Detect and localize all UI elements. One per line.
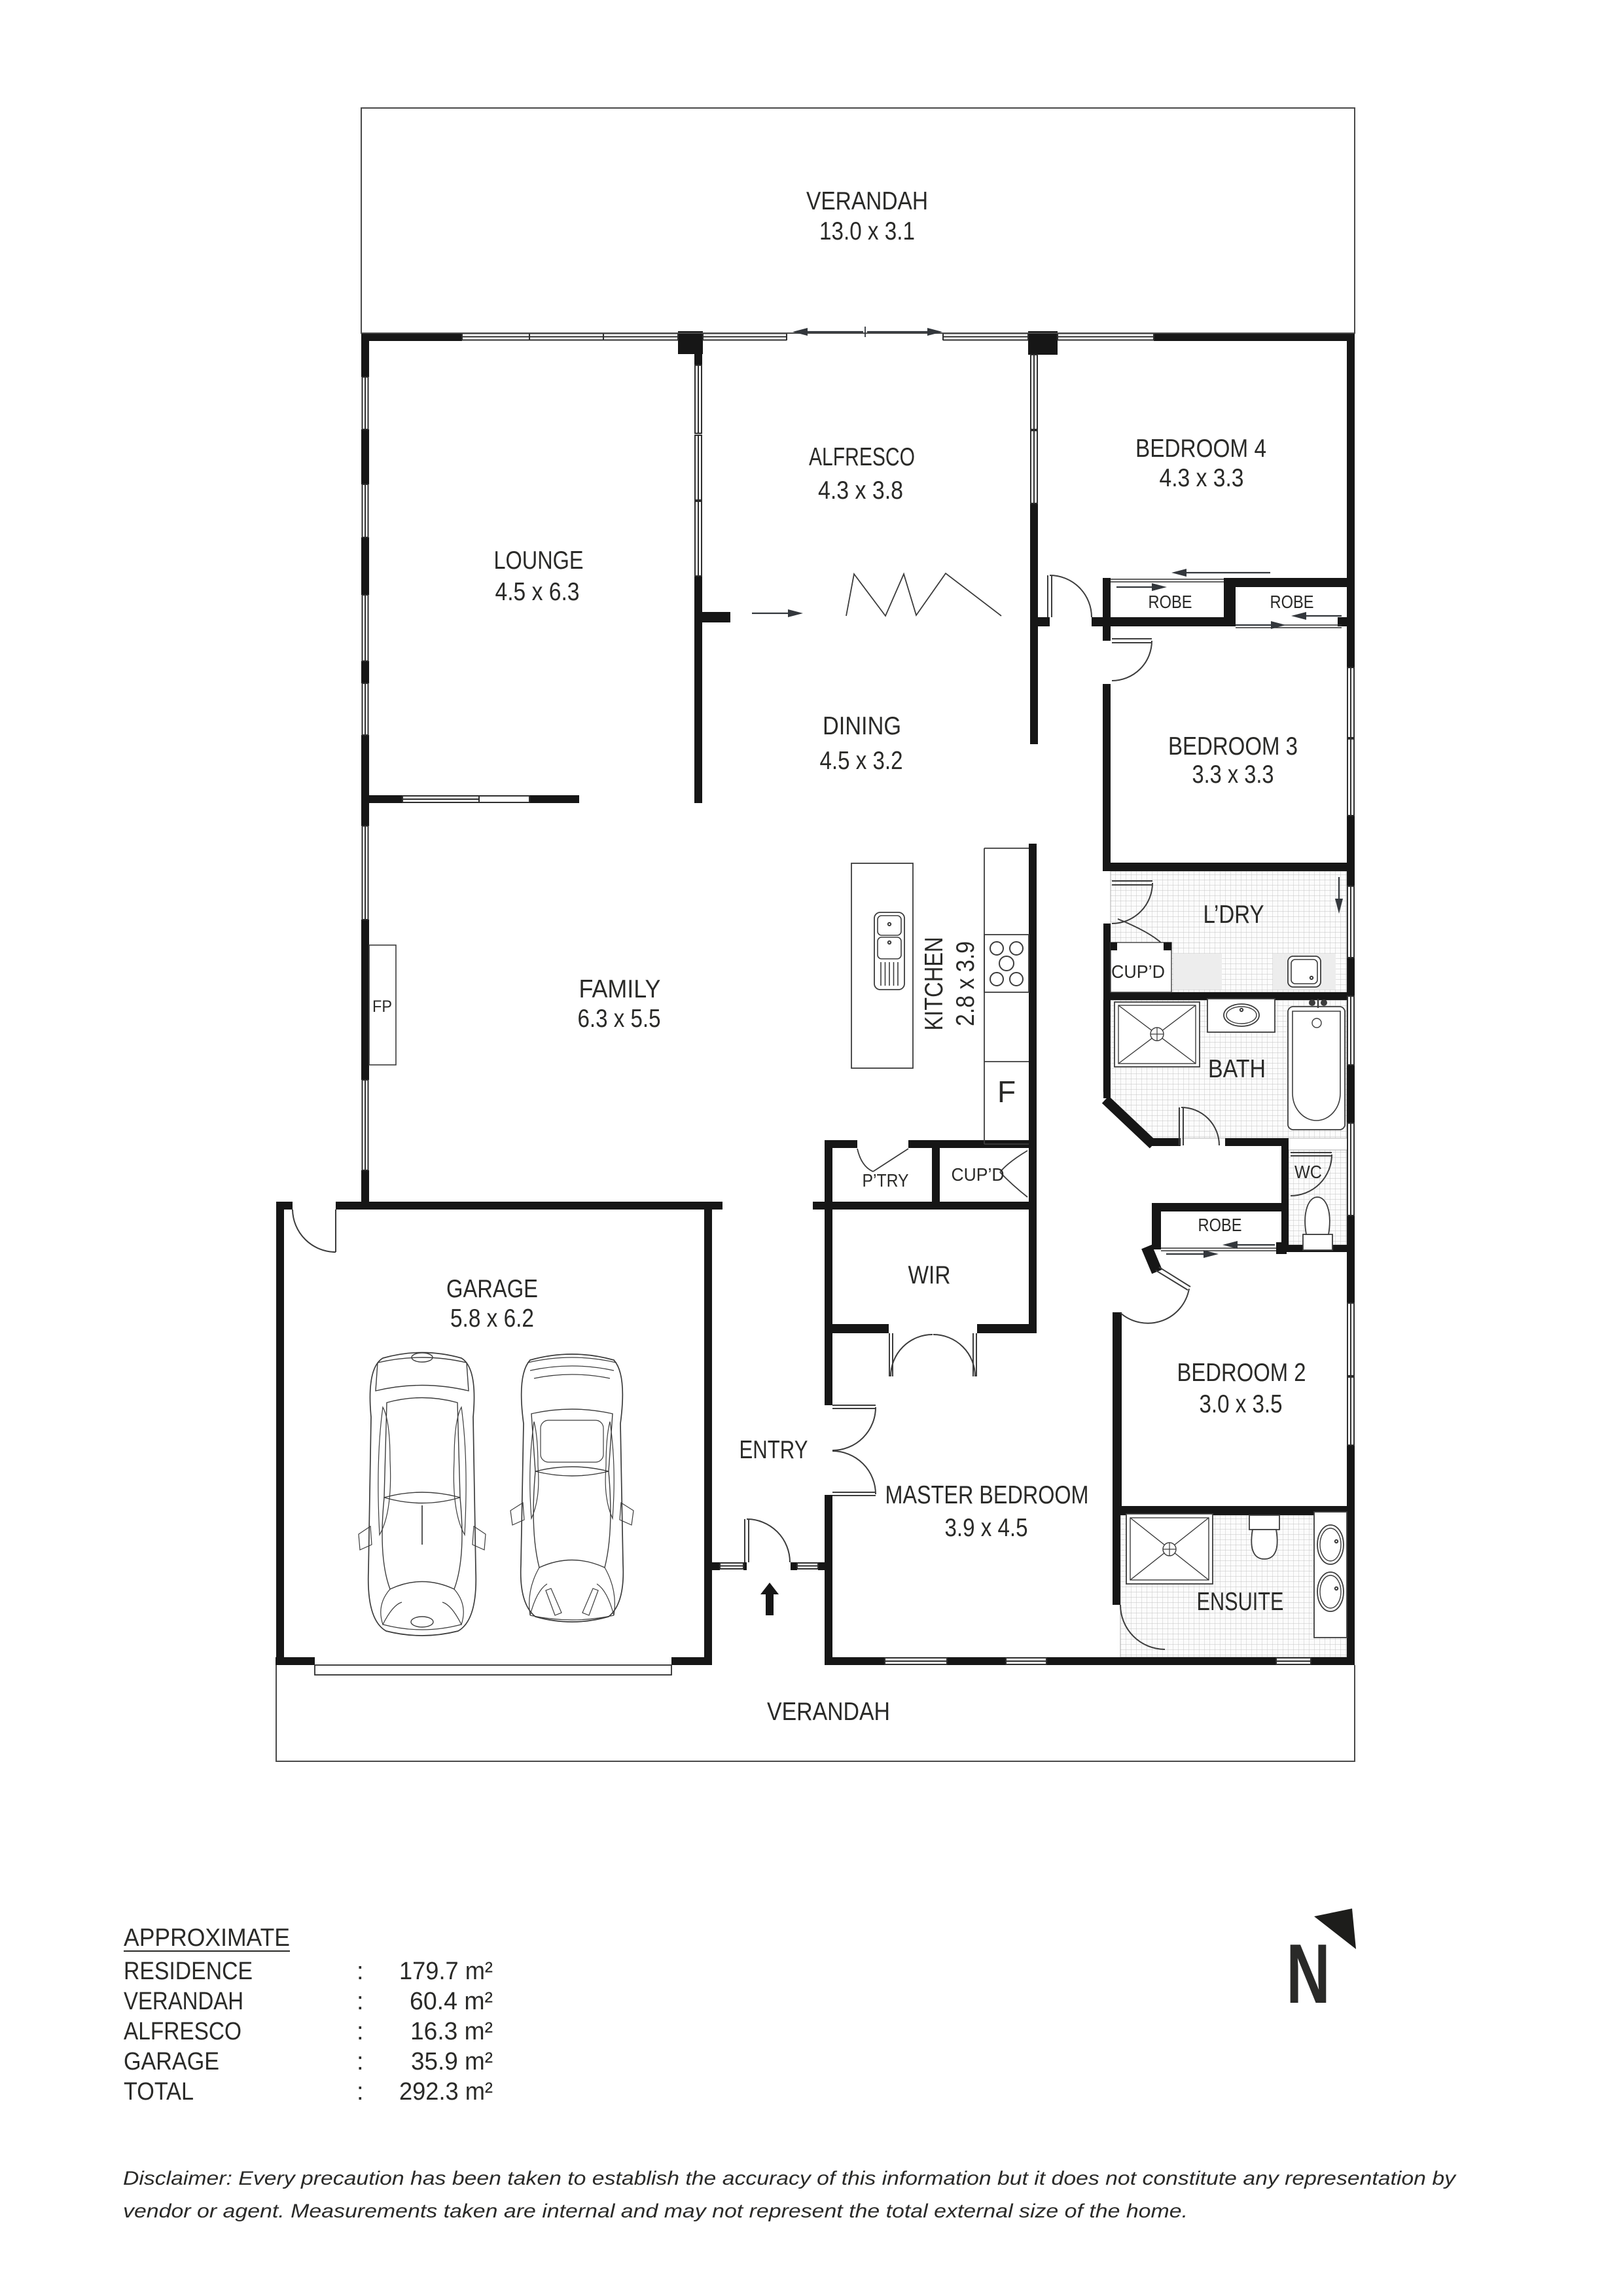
svg-text:4.3 x 3.3: 4.3 x 3.3: [1160, 464, 1244, 492]
svg-text:BEDROOM 2: BEDROOM 2: [1177, 1359, 1306, 1387]
svg-text:ENSUITE: ENSUITE: [1197, 1588, 1284, 1616]
svg-text:BEDROOM 3: BEDROOM 3: [1168, 732, 1298, 761]
svg-text:2.8 x 3.9: 2.8 x 3.9: [952, 941, 980, 1026]
svg-text:FP: FP: [372, 997, 392, 1016]
svg-text::: :: [357, 2078, 364, 2106]
svg-text:RESIDENCE: RESIDENCE: [124, 1958, 253, 1985]
svg-text:WIR: WIR: [908, 1261, 951, 1289]
svg-text:ROBE: ROBE: [1270, 592, 1314, 612]
svg-text::: :: [357, 1988, 364, 2015]
svg-text:4.5 x 6.3: 4.5 x 6.3: [495, 578, 580, 606]
svg-text:35.9 m²: 35.9 m²: [411, 2048, 493, 2075]
svg-text:VERANDAH: VERANDAH: [124, 1988, 243, 2015]
svg-text:ENTRY: ENTRY: [740, 1436, 808, 1464]
svg-text:60.4 m²: 60.4 m²: [410, 1988, 493, 2015]
svg-text:3.0 x 3.5: 3.0 x 3.5: [1200, 1390, 1283, 1418]
svg-text:L’DRY: L’DRY: [1204, 901, 1264, 929]
svg-text:3.3 x 3.3: 3.3 x 3.3: [1192, 761, 1274, 789]
svg-text:F: F: [997, 1075, 1016, 1109]
svg-text:ROBE: ROBE: [1149, 592, 1192, 612]
svg-text:Disclaimer: Every precaution h: Disclaimer: Every precaution has been ta…: [123, 2168, 1457, 2189]
svg-text:179.7 m²: 179.7 m²: [399, 1958, 493, 1985]
svg-text:CUP’D: CUP’D: [1111, 961, 1165, 982]
svg-text:GARAGE: GARAGE: [446, 1275, 538, 1303]
svg-text:6.3 x 5.5: 6.3 x 5.5: [578, 1005, 661, 1033]
svg-text:DINING: DINING: [823, 712, 901, 740]
svg-text:N: N: [1286, 1926, 1330, 2021]
svg-text:BEDROOM 4: BEDROOM 4: [1135, 435, 1266, 463]
svg-text::: :: [357, 2018, 364, 2045]
svg-text:BATH: BATH: [1208, 1055, 1266, 1083]
svg-text:TOTAL: TOTAL: [124, 2078, 194, 2106]
svg-text:3.9 x 4.5: 3.9 x 4.5: [945, 1514, 1028, 1542]
svg-text:FAMILY: FAMILY: [579, 975, 661, 1003]
svg-text::: :: [357, 1958, 364, 1985]
svg-text:16.3 m²: 16.3 m²: [410, 2018, 493, 2045]
svg-text:VERANDAH: VERANDAH: [806, 187, 928, 215]
svg-text:5.8 x 6.2: 5.8 x 6.2: [450, 1304, 534, 1333]
svg-text:ROBE: ROBE: [1198, 1215, 1242, 1235]
svg-text:WC: WC: [1294, 1162, 1322, 1182]
svg-text::: :: [357, 2048, 364, 2075]
svg-text:P’TRY: P’TRY: [863, 1170, 909, 1191]
svg-text:4.3 x 3.8: 4.3 x 3.8: [818, 476, 903, 505]
svg-text:KITCHEN: KITCHEN: [920, 937, 948, 1031]
svg-text:LOUNGE: LOUNGE: [494, 547, 584, 575]
svg-text:292.3 m²: 292.3 m²: [399, 2078, 493, 2106]
svg-text:ALFRESCO: ALFRESCO: [809, 443, 915, 471]
svg-text:CUP’D: CUP’D: [952, 1164, 1005, 1185]
svg-text:VERANDAH: VERANDAH: [767, 1698, 890, 1726]
svg-text:vendor or agent. Measurements: vendor or agent. Measurements taken are …: [123, 2200, 1188, 2222]
svg-text:MASTER BEDROOM: MASTER BEDROOM: [885, 1481, 1089, 1509]
svg-text:4.5 x 3.2: 4.5 x 3.2: [820, 747, 903, 775]
svg-text:GARAGE: GARAGE: [124, 2048, 219, 2075]
svg-text:ALFRESCO: ALFRESCO: [124, 2018, 241, 2045]
svg-text:APPROXIMATE: APPROXIMATE: [124, 1924, 290, 1952]
svg-text:13.0 x 3.1: 13.0 x 3.1: [819, 217, 915, 245]
